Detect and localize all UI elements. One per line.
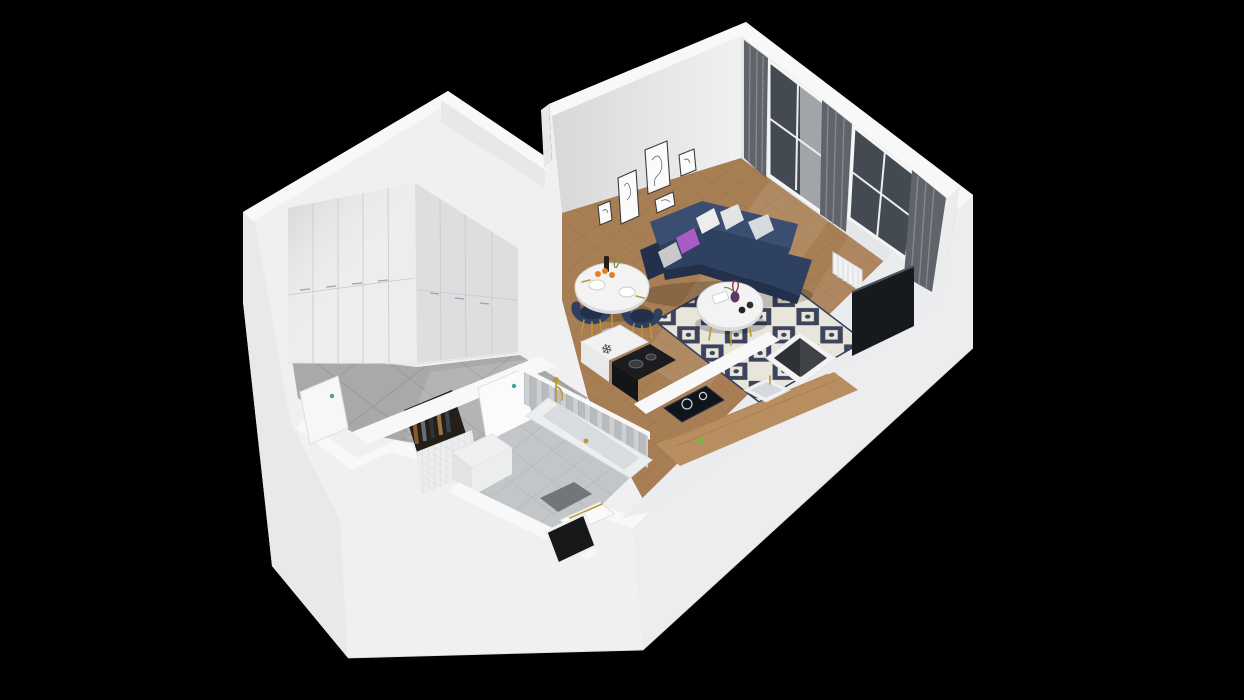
burner: [629, 360, 643, 368]
bathroom-door-handle: [512, 384, 516, 388]
fruit: [595, 271, 601, 277]
dining-chair-seat: [630, 309, 654, 323]
render-canvas: ❄: [0, 0, 1244, 700]
picture-frame: [598, 201, 612, 225]
candle-cup: [747, 302, 754, 309]
plate: [619, 287, 635, 297]
green-apple: [697, 438, 704, 445]
picture-frame: [645, 141, 670, 194]
apartment-3d-floor-plan: ❄: [0, 0, 1244, 700]
bathtub-drain: [584, 439, 589, 444]
dining-table-top: [575, 263, 649, 311]
candle-cup: [739, 307, 746, 314]
plate: [589, 280, 605, 290]
burner: [646, 354, 656, 360]
entry-door-handle: [330, 394, 334, 398]
picture-frame: [618, 170, 639, 224]
fruit: [602, 268, 608, 274]
flower-vase: [731, 292, 740, 303]
fruit: [609, 272, 615, 278]
shower-head: [553, 377, 559, 383]
